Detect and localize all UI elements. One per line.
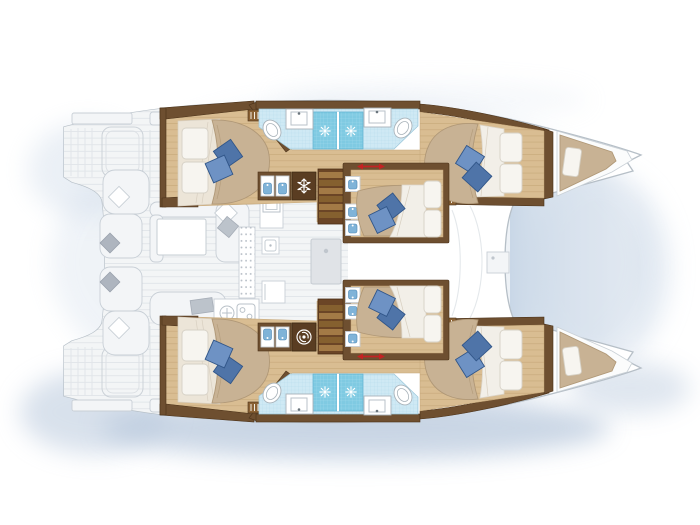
- pillow: [182, 128, 208, 159]
- transom-step: [72, 400, 132, 411]
- pillow: [424, 181, 441, 208]
- pillow: [500, 164, 522, 193]
- cabin-wall: [544, 129, 553, 199]
- pillow: [424, 210, 441, 237]
- vanity-fwd: [364, 108, 391, 127]
- pillow: [562, 147, 582, 177]
- catamaran-floor-plan: [0, 0, 700, 525]
- vanity-aft: [286, 109, 313, 129]
- shower-sun-icon: [346, 126, 356, 136]
- sideboard-dotted: [239, 227, 255, 298]
- cabin-wall: [160, 108, 166, 207]
- center-cabin-port: [343, 163, 449, 243]
- coffee-table: [157, 219, 206, 255]
- shower-sun-icon: [320, 126, 330, 136]
- center-cabin-starboard: [343, 280, 449, 360]
- transom-step: [72, 113, 132, 124]
- bathroom-wall: [256, 101, 420, 109]
- deck-locker: [487, 252, 509, 273]
- companionway-stairs: [318, 169, 345, 224]
- cushion: [190, 298, 214, 315]
- tv-cabinet: [311, 239, 341, 284]
- faucet: [298, 112, 301, 115]
- pillow: [500, 133, 522, 162]
- floor-plan-svg: [0, 0, 700, 525]
- faucet: [376, 111, 379, 114]
- pillow: [182, 162, 208, 193]
- bathrooms: [256, 101, 420, 149]
- washing-machine: [292, 323, 316, 351]
